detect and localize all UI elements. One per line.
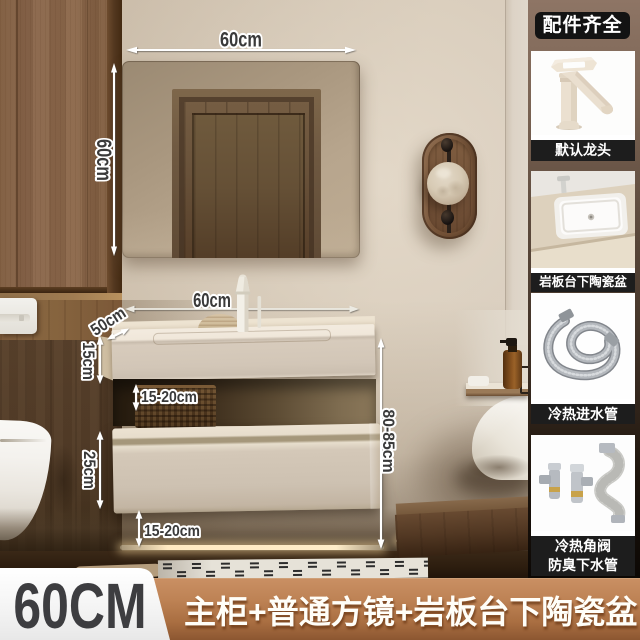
svg-text:60cm: 60cm: [193, 289, 231, 312]
svg-text:15cm: 15cm: [79, 342, 97, 380]
svg-text:60cm: 60cm: [220, 28, 262, 51]
svg-text:15-20cm: 15-20cm: [141, 388, 197, 406]
svg-text:25cm: 25cm: [80, 451, 98, 489]
svg-text:80-85cm: 80-85cm: [379, 409, 398, 472]
svg-text:60cm: 60cm: [93, 139, 116, 181]
svg-text:50cm: 50cm: [88, 304, 130, 340]
svg-text:15-20cm: 15-20cm: [144, 522, 200, 540]
